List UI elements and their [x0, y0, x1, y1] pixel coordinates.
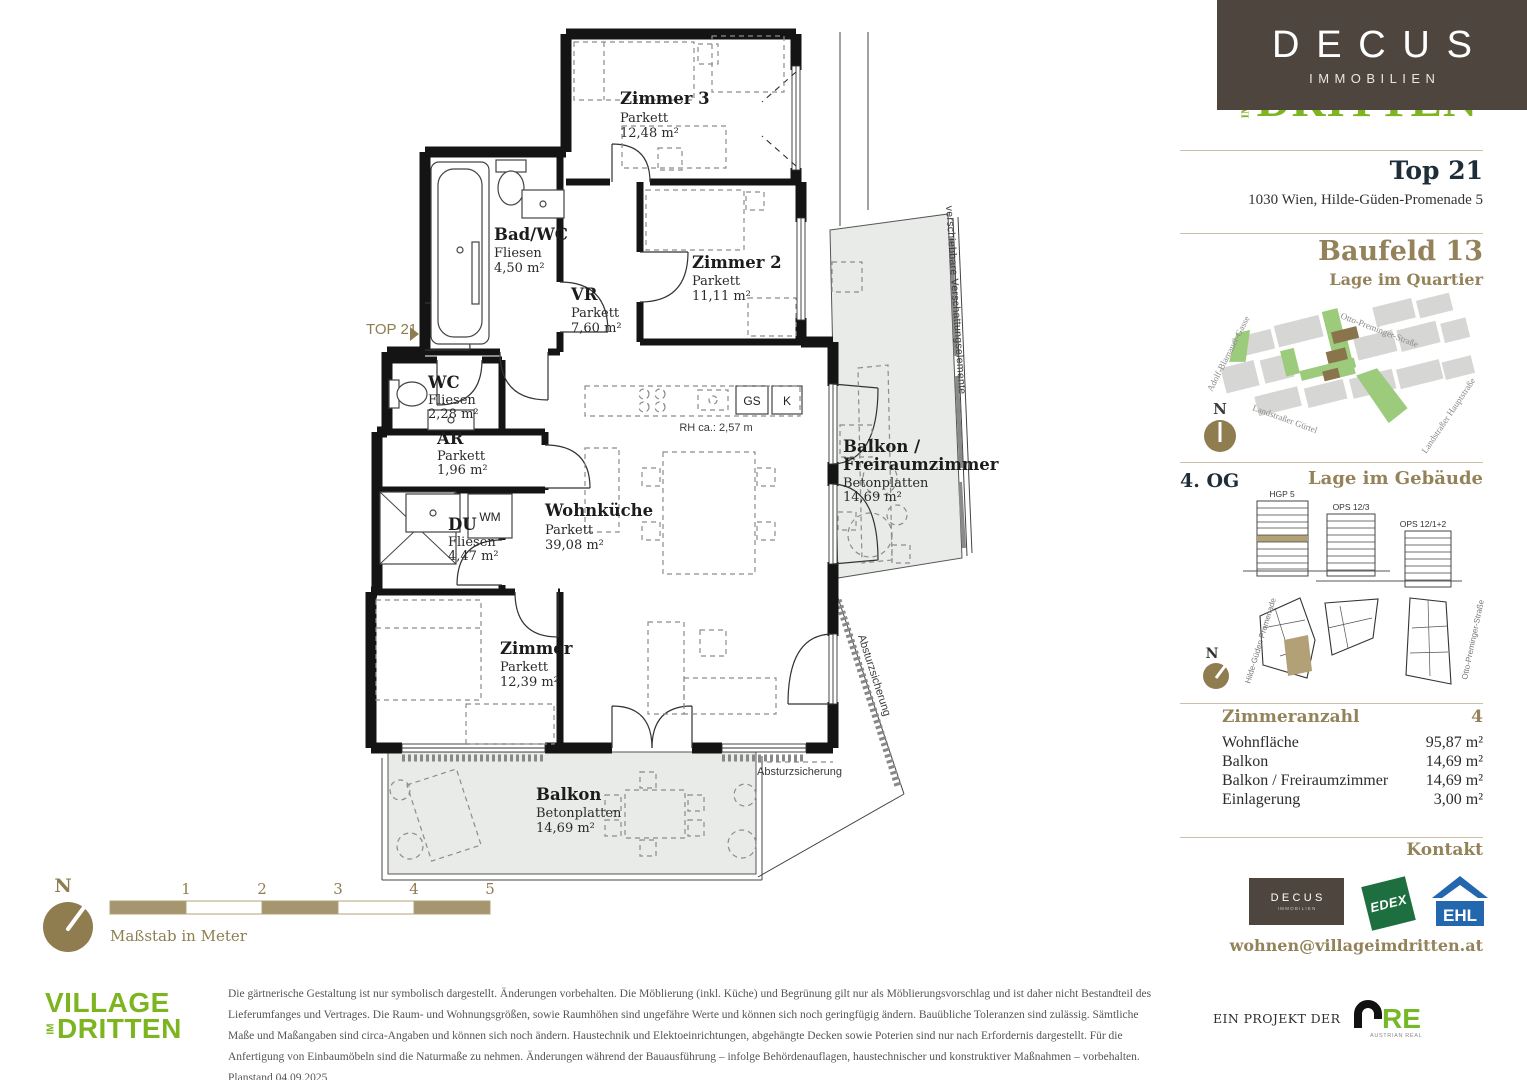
fridge-label: K	[783, 394, 791, 408]
edex-logo: EDEX	[1357, 872, 1419, 934]
scale-bar: N 1 2 3 4 5 Maßstab in Meter	[43, 875, 495, 952]
are-logo-text: RE	[1382, 1003, 1421, 1034]
elevation-ops1212-label: OPS 12/1+2	[1400, 519, 1447, 529]
decus-partner-logo: DECUS IMMOBILIEN	[1249, 878, 1344, 925]
highlighted-unit	[1284, 635, 1312, 676]
map-compass-label: N	[1213, 400, 1227, 418]
address: 1030 Wien, Hilde-Güden-Promenade 5	[1180, 192, 1483, 209]
elevation-ops1212	[1405, 531, 1451, 587]
project-label: EIN PROJEKT DER	[1213, 1011, 1340, 1026]
room-du-area: 4,47 m²	[448, 549, 499, 564]
room-freiraum-floor: Betonplatten	[843, 476, 929, 491]
room-freiraum-area: 14,69 m²	[843, 490, 902, 505]
disclaimer-text: Die gärtnerische Gestaltung ist nur symb…	[228, 984, 1160, 1080]
fall-protection-label-horizontal: Absturzsicherung	[757, 766, 842, 778]
village-logo-line2: DRITTEN	[57, 1016, 182, 1042]
decus-logo: DECUS IMMOBILIEN	[1217, 0, 1527, 110]
divider	[1180, 150, 1483, 151]
scale-number-3: 3	[333, 880, 343, 898]
room-zimmer-area: 12,39 m²	[500, 675, 559, 690]
elevation-hgp5	[1257, 501, 1308, 576]
street-label-right: Otto-Preminger-Straße	[1460, 598, 1485, 680]
room-zimmer2-floor: Parkett	[692, 274, 741, 289]
divider	[1180, 462, 1483, 463]
unit-marker-label: TOP 21	[366, 321, 417, 338]
building-compass-icon: N	[1203, 646, 1229, 689]
room-du-floor: Fliesen	[448, 535, 496, 550]
room-ar-area: 1,96 m²	[437, 463, 488, 478]
edex-logo-text: EDEX	[1368, 891, 1408, 915]
room-wohnkueche-name: Wohnküche	[544, 501, 653, 520]
are-project-lockup: EIN PROJEKT DER RE AUSTRIAN REAL ESTATE	[1213, 998, 1422, 1038]
doors	[425, 144, 878, 748]
scale-number-2: 2	[257, 880, 267, 898]
room-wc-floor: Fliesen	[428, 393, 476, 408]
highlighted-floor	[1257, 535, 1308, 542]
washer-label: WM	[479, 510, 500, 524]
building-heading: Lage im Gebäude	[1180, 468, 1483, 489]
table-row: Balkon 14,69 m²	[1222, 752, 1483, 771]
room-balkon-name: Balkon	[536, 785, 601, 804]
table-row: Einlagerung 3,00 m²	[1222, 790, 1483, 809]
row-label: Wohnfläche	[1222, 733, 1299, 752]
room-freiraum-name1: Balkon /	[843, 437, 921, 456]
scale-number-4: 4	[409, 880, 419, 898]
row-label: Einlagerung	[1222, 790, 1300, 809]
dishwasher-label: GS	[743, 394, 760, 408]
ehl-logo-text: EHL	[1443, 906, 1477, 925]
room-zimmer3-name: Zimmer 3	[620, 89, 710, 108]
room-vr-area: 7,60 m²	[571, 321, 622, 336]
room-ar-name: AR	[436, 429, 464, 448]
row-value: 4	[1471, 708, 1483, 727]
are-logo-sub: AUSTRIAN REAL ESTATE	[1370, 1033, 1422, 1038]
row-value: 95,87 m²	[1426, 733, 1483, 752]
ehl-logo: EHL	[1432, 876, 1488, 928]
elevation-ops123	[1327, 514, 1375, 576]
quartier-heading: Lage im Quartier	[1180, 270, 1483, 289]
row-label: Balkon	[1222, 752, 1268, 771]
room-zimmer-floor: Parkett	[500, 660, 549, 675]
contact-email[interactable]: wohnen@villageimdritten.at	[1180, 936, 1483, 955]
village-logo-im: IM	[46, 1023, 55, 1035]
row-label: Zimmeranzahl	[1222, 708, 1359, 727]
room-freiraum-name2: Freiraumzimmer	[843, 455, 999, 474]
decus-partner-name: DECUS	[1271, 892, 1326, 904]
room-zimmer3-area: 12,48 m²	[620, 126, 679, 141]
french-door-leaves	[762, 72, 796, 166]
scale-number-5: 5	[485, 880, 495, 898]
row-value: 14,69 m²	[1426, 752, 1483, 771]
village-logo-line1: VILLAGE	[45, 990, 182, 1016]
room-height-label: RH ca.: 2,57 m	[679, 422, 752, 434]
room-badwc-name: Bad/WC	[494, 225, 568, 244]
compass-north-label: N	[54, 875, 71, 897]
row-label: Balkon / Freiraumzimmer	[1222, 771, 1388, 790]
table-row: Balkon / Freiraumzimmer 14,69 m²	[1222, 771, 1483, 790]
floor-plan: Zimmer 3 Parkett 12,48 m² Bad/WC Fliesen…	[0, 0, 1170, 980]
baufeld-heading: Baufeld 13	[1180, 236, 1483, 267]
page-title: Top 21	[1180, 156, 1483, 185]
room-wohnkueche-area: 39,08 m²	[545, 538, 604, 553]
room-wohnkueche-floor: Parkett	[545, 523, 594, 538]
decus-logo-name: DECUS	[1272, 24, 1489, 67]
footprint-ops123	[1325, 599, 1378, 655]
building-diagram: HGP 5 OPS 12/3 OPS 12/1+2	[1180, 488, 1485, 700]
room-badwc-area: 4,50 m²	[494, 261, 545, 276]
divider	[1180, 703, 1483, 704]
elevation-ops123-label: OPS 12/3	[1333, 502, 1370, 512]
room-ar-floor: Parkett	[437, 449, 486, 464]
scale-number-1: 1	[181, 880, 191, 898]
decus-partner-sub: IMMOBILIEN	[1278, 906, 1317, 911]
room-badwc-floor: Fliesen	[494, 246, 542, 261]
room-vr-name: VR	[570, 285, 598, 304]
building-compass-label: N	[1206, 646, 1219, 662]
kontakt-heading: Kontakt	[1180, 840, 1483, 860]
room-balkon-floor: Betonplatten	[536, 806, 622, 821]
table-row: Zimmeranzahl 4	[1222, 708, 1483, 727]
room-zimmer3-floor: Parkett	[620, 111, 669, 126]
row-value: 3,00 m²	[1434, 790, 1483, 809]
village-im-dritten-logo: VILLAGE IM DRITTEN	[45, 990, 182, 1042]
room-zimmer2-area: 11,11 m²	[692, 289, 751, 304]
map-compass-icon: N	[1204, 400, 1236, 452]
room-wc-name: WC	[427, 373, 460, 392]
street-landstrasser-hauptstrasse: Landstraßer Hauptstraße	[1419, 376, 1477, 455]
elevation-hgp5-label: HGP 5	[1269, 489, 1295, 499]
divider	[1180, 233, 1483, 234]
scale-label: Maßstab in Meter	[110, 927, 248, 945]
footprint-ops1212	[1406, 598, 1451, 684]
are-logo-icon: RE AUSTRIAN REAL ESTATE	[1350, 998, 1422, 1038]
table-row: Wohnfläche 95,87 m²	[1222, 733, 1483, 752]
room-wc-area: 2,28 m²	[428, 407, 479, 422]
room-zimmer2-name: Zimmer 2	[692, 253, 782, 272]
decus-logo-sub: IMMOBILIEN	[1309, 71, 1440, 86]
room-du-name: DU	[448, 515, 477, 534]
row-value: 14,69 m²	[1426, 771, 1483, 790]
floorplan-datasheet: Zimmer 3 Parkett 12,48 m² Bad/WC Fliesen…	[0, 0, 1527, 1080]
room-vr-floor: Parkett	[571, 306, 620, 321]
room-zimmer-name: Zimmer	[500, 639, 573, 658]
room-balkon-area: 14,69 m²	[536, 821, 595, 836]
divider	[1180, 837, 1483, 838]
quartier-map: Adolf-Blamauer-Gasse Otto-Preminger-Stra…	[1192, 292, 1484, 474]
